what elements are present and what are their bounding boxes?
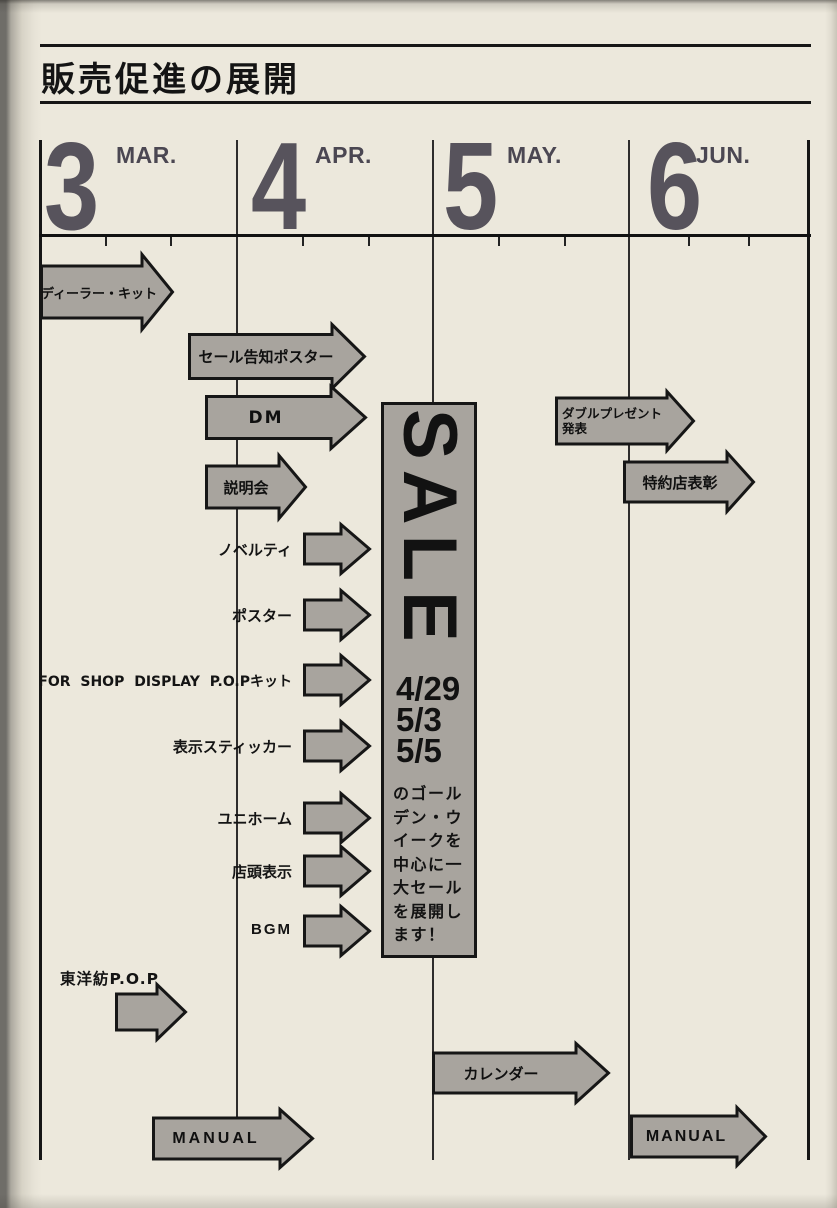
timeline-tick xyxy=(748,237,750,246)
sale-message: のゴールデン・ウイークを中心に一大セールを展開します！ xyxy=(393,782,465,947)
arrow-label: MANUAL xyxy=(630,1106,767,1167)
arrow-dm: DM xyxy=(205,385,367,450)
arrow-display-sticker xyxy=(303,720,371,772)
arrow-manual-right: MANUAL xyxy=(630,1106,767,1167)
timeline-tick xyxy=(170,237,172,246)
grid-line-june xyxy=(628,140,630,1160)
arrow-dealer-award: 特約店表彰 xyxy=(623,451,755,513)
page-gutter-shadow xyxy=(0,0,42,1208)
month-number: 4 xyxy=(251,140,306,235)
arrow-novelty xyxy=(303,523,371,575)
title-rule-bottom xyxy=(40,101,811,104)
title-rule-top xyxy=(40,44,811,47)
arrow-calendar: カレンダー xyxy=(432,1042,610,1104)
arrow-briefing-session: 説明会 xyxy=(205,454,307,520)
arrow-label: ダブルプレゼント 発表 xyxy=(555,390,695,452)
sale-date: 5/5 xyxy=(396,735,474,766)
arrow-label: DM xyxy=(205,385,367,450)
scanned-promo-page: 販売促進の展開 3 MAR. 4 APR. 5 MAY. 6 JUN. SALE… xyxy=(0,0,837,1208)
month-abbr: MAR. xyxy=(116,142,177,169)
arrow-toyobo-pop xyxy=(115,983,187,1041)
sale-dates: 4/29 5/3 5/5 xyxy=(396,673,474,766)
page-bottom-shadow xyxy=(0,1194,837,1208)
label-display-sticker: 表示スティッカー xyxy=(173,736,292,757)
arrow-manual-left: MANUAL xyxy=(152,1108,314,1169)
label-toyobo-pop: 東洋紡P.O.P xyxy=(60,967,159,989)
arrow-pop-kit xyxy=(303,654,371,706)
label-bgm: BGM xyxy=(251,921,292,938)
sale-date: 5/3 xyxy=(396,704,474,735)
month-header-march: 3 MAR. xyxy=(40,140,237,237)
label-store-display: 店頭表示 xyxy=(232,861,292,882)
arrow-poster xyxy=(303,589,371,641)
arrow-label: 特約店表彰 xyxy=(623,451,755,513)
page-top-shadow xyxy=(0,0,837,14)
label-novelty: ノベルティ xyxy=(218,539,292,560)
timeline-tick xyxy=(105,237,107,246)
month-number: 5 xyxy=(443,140,498,235)
arrow-double-present: ダブルプレゼント 発表 xyxy=(555,390,695,452)
month-header-june: 6 JUN. xyxy=(629,140,808,237)
month-abbr: JUN. xyxy=(696,142,750,169)
grid-right-border xyxy=(807,140,810,1160)
label-shop-display-pop-kit: FOR SHOP DISPLAY P.O.Pキット xyxy=(38,671,292,691)
arrow-label: カレンダー xyxy=(432,1042,610,1104)
label-poster: ポスター xyxy=(232,605,292,626)
arrow-uniform xyxy=(303,792,371,844)
arrow-label: ディーラー・キット xyxy=(40,253,174,331)
timeline-tick xyxy=(368,237,370,246)
sale-highlight-box: SALE 4/29 5/3 5/5 のゴールデン・ウイークを中心に一大セールを展… xyxy=(381,402,477,958)
month-number: 6 xyxy=(647,140,702,235)
month-abbr: APR. xyxy=(315,142,372,169)
month-abbr: MAY. xyxy=(507,142,562,169)
arrow-label: セール告知ポスター xyxy=(188,323,366,390)
arrow-label-line1: ダブルプレゼント xyxy=(562,406,662,421)
page-right-shadow xyxy=(825,0,837,1208)
arrow-label: MANUAL xyxy=(152,1108,314,1169)
timeline-tick xyxy=(564,237,566,246)
month-header-april: 4 APR. xyxy=(237,140,433,237)
label-uniform: ユニホーム xyxy=(217,808,292,829)
timeline-tick xyxy=(498,237,500,246)
arrow-store-display xyxy=(303,845,371,897)
month-number: 3 xyxy=(44,140,99,235)
grid-line-april xyxy=(236,140,238,1160)
arrow-label-line2: 発表 xyxy=(562,421,587,436)
arrow-label: 説明会 xyxy=(205,454,307,520)
arrow-bgm xyxy=(303,905,371,957)
page-title: 販売促進の展開 xyxy=(41,52,300,101)
month-header-may: 5 MAY. xyxy=(433,140,629,237)
arrow-sale-announcement-poster: セール告知ポスター xyxy=(188,323,366,390)
sale-date: 4/29 xyxy=(396,673,474,704)
arrow-dealer-kit: ディーラー・キット xyxy=(40,253,174,331)
sale-word-vertical: SALE xyxy=(387,409,471,667)
